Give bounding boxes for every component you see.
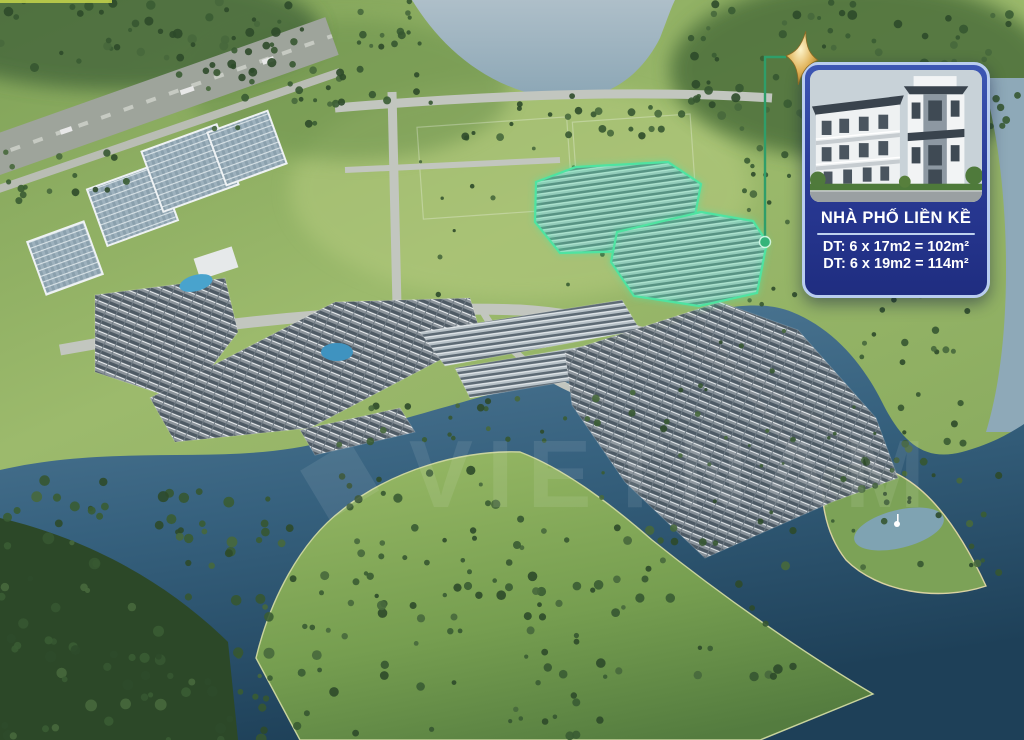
top-edge-artifact — [0, 0, 112, 3]
connector-dot — [760, 237, 771, 248]
masterplan-aerial-screenshot: ◆VIETNAM — [0, 0, 1024, 740]
card-divider — [817, 233, 975, 235]
park-pond — [321, 343, 353, 361]
card-spec-line-1: DT: 6 x 17m2 = 102m² — [810, 239, 982, 256]
card-title: NHÀ PHỐ LIỀN KỀ — [810, 209, 982, 228]
townhouse-render-image — [810, 70, 982, 202]
card-spec-line-2: DT: 6 x 19m2 = 114m² — [810, 256, 982, 273]
sparkle-star-icon — [776, 28, 828, 88]
info-card: NHÀ PHỐ LIỀN KỀ DT: 6 x 17m2 = 102m² DT:… — [802, 62, 990, 298]
